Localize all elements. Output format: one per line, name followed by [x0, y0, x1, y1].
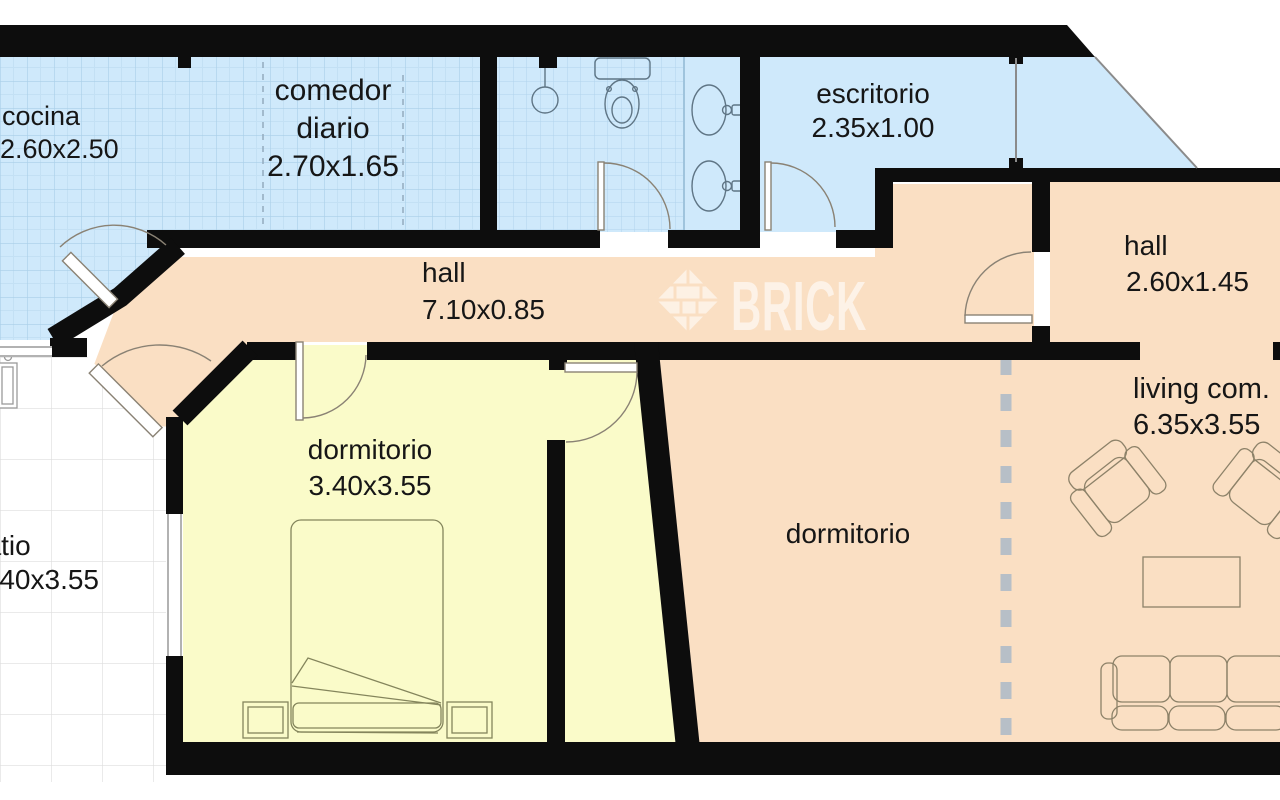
label-cocina: cocina [2, 98, 80, 134]
wall-blue-bottom-mid [668, 230, 742, 248]
wall-hall-bottom-c [1273, 342, 1280, 360]
label-escritorio-dims: 2.35x1.00 [773, 110, 973, 146]
label-cocina-dims: 2.60x2.50 [0, 131, 119, 167]
label-dormitorio2: dormitorio [748, 516, 948, 552]
wall-stub-cocina-comedor [178, 57, 191, 68]
wall-closet-vertical [547, 440, 565, 748]
wall-comedor-bath [480, 55, 497, 248]
label-comedor-line1: comedor [233, 72, 433, 110]
wall-dorm1-left-b [166, 656, 183, 748]
label-hall-main: hall [422, 255, 466, 291]
label-dormitorio1-dims: 3.40x3.55 [270, 468, 470, 504]
wall-patio-top [50, 338, 87, 357]
label-hall-right: hall [1124, 228, 1168, 264]
brick-watermark-text: BRICK [731, 266, 867, 346]
wall-top [0, 25, 1095, 57]
wall-closet-stub [549, 342, 567, 370]
wall-dorm1-left-a [166, 417, 183, 514]
window-dorm1-patio [166, 514, 183, 656]
wall-stub-shower [539, 55, 557, 68]
label-patio-dims: 3.40x3.55 [0, 562, 99, 598]
label-living: living com. [1133, 371, 1270, 407]
wall-blue-bottom-left [147, 230, 600, 248]
floorplan-drawing [0, 0, 1280, 800]
label-comedor-line2: diario [233, 110, 433, 148]
wall-hall-divider [1032, 182, 1050, 252]
window-patio-top [0, 346, 52, 357]
bathroom-floor [497, 57, 683, 232]
label-comedor-dims: 2.70x1.65 [233, 148, 433, 186]
wall-hall-divider-stub [1032, 326, 1050, 342]
label-comedor: comedor diario 2.70x1.65 [233, 72, 433, 186]
label-patio: patio [0, 528, 31, 564]
label-escritorio: escritorio [773, 76, 973, 112]
dormitorio1-floor [183, 345, 688, 748]
label-living-dims: 6.35x3.55 [1133, 407, 1260, 443]
label-hall-right-dims: 2.60x1.45 [1126, 264, 1249, 300]
label-hall-main-dims: 7.10x0.85 [422, 292, 545, 328]
wall-bath-escritorio [740, 55, 760, 248]
wall-bottom [166, 742, 1280, 775]
wall-hall-right-top [875, 168, 1280, 182]
label-dormitorio1: dormitorio [270, 432, 470, 468]
sink-nook-floor [683, 57, 742, 232]
wall-blue-bottom-right [836, 230, 877, 248]
floorplan-canvas: cocina 2.60x2.50 comedor diario 2.70x1.6… [0, 0, 1280, 800]
